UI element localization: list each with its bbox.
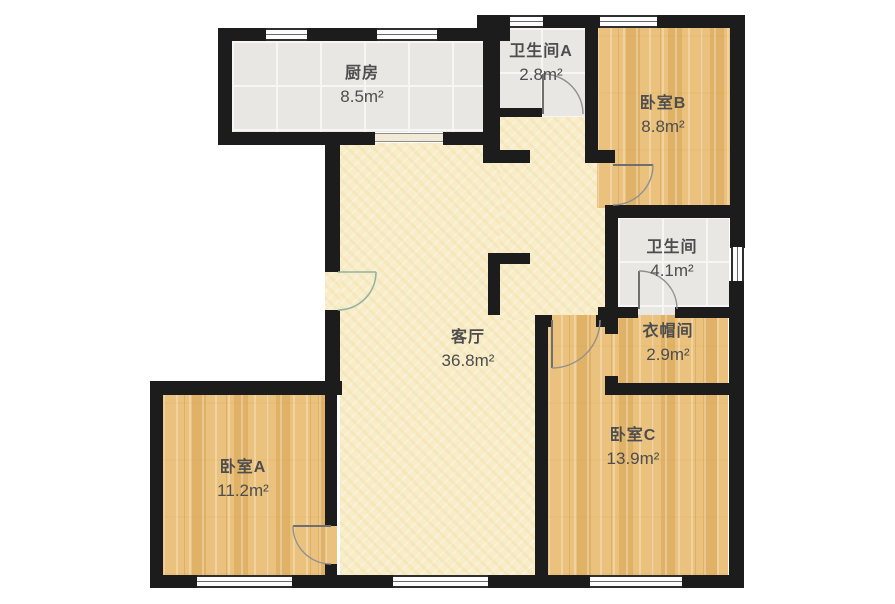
bedroom-b-door [613, 165, 653, 205]
bedroom-c-door [552, 320, 600, 368]
bathroom-name: 卫生间 [646, 236, 697, 259]
bedroom-b-label: 卧室B 8.8m² [640, 92, 687, 140]
bathroom-area: 4.1m² [646, 259, 697, 284]
bathroom-a-label: 卫生间A 2.8m² [509, 40, 573, 88]
cloakroom-name: 衣帽间 [642, 320, 693, 343]
bathroom-a-name: 卫生间A [509, 40, 573, 63]
kitchen-label: 厨房 8.5m² [340, 62, 383, 110]
floor-plan: 厨房 8.5m² 卫生间A 2.8m² 卧室B 8.8m² 卫生间 4.1m² … [0, 0, 895, 604]
living-room-name: 客厅 [442, 326, 495, 349]
bedroom-a-label: 卧室A 11.2m² [217, 456, 269, 504]
entry-door [338, 272, 376, 310]
bedroom-c-label: 卧室C 13.9m² [607, 424, 660, 472]
kitchen-name: 厨房 [340, 62, 383, 85]
kitchen-area: 8.5m² [340, 85, 383, 110]
doors-layer [0, 0, 895, 604]
cloakroom-area: 2.9m² [642, 343, 693, 368]
bathroom-label: 卫生间 4.1m² [646, 236, 697, 284]
bedroom-a-name: 卧室A [217, 456, 269, 479]
bathroom-a-area: 2.8m² [509, 63, 573, 88]
bedroom-b-name: 卧室B [640, 92, 687, 115]
bedroom-c-name: 卧室C [607, 424, 660, 447]
living-room-area: 36.8m² [442, 349, 495, 374]
cloakroom-label: 衣帽间 2.9m² [642, 320, 693, 368]
bedroom-c-area: 13.9m² [607, 447, 660, 472]
bedroom-a-door [293, 526, 331, 564]
bedroom-b-area: 8.8m² [640, 115, 687, 140]
living-room-label: 客厅 36.8m² [442, 326, 495, 374]
bedroom-a-area: 11.2m² [217, 479, 269, 504]
